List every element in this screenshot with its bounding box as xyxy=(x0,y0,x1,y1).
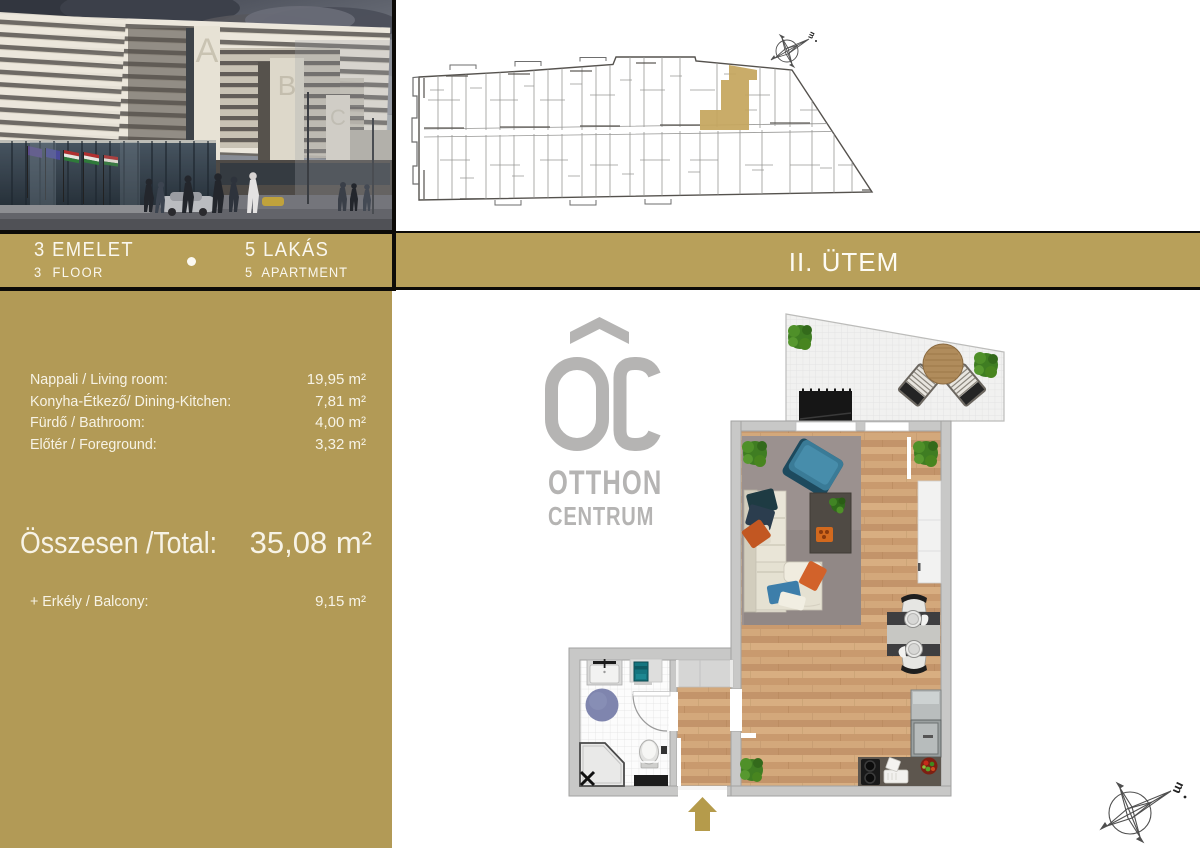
svg-text:B: B xyxy=(278,70,297,101)
svg-text:OTTHON: OTTHON xyxy=(548,464,662,502)
svg-text:A: A xyxy=(196,32,219,70)
svg-text:CENTRUM: CENTRUM xyxy=(548,502,654,531)
svg-text:m: m xyxy=(1170,780,1188,797)
svg-text:m: m xyxy=(806,30,817,40)
